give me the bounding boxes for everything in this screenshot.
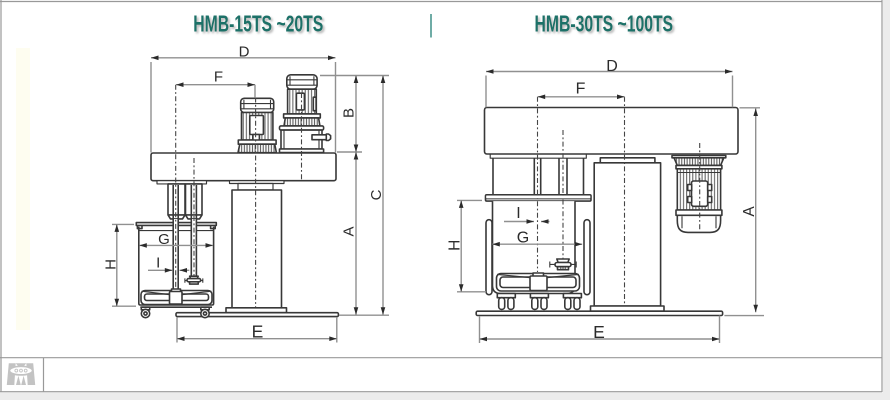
svg-text:I: I: [156, 254, 160, 271]
svg-text:D: D: [606, 58, 618, 75]
svg-text:F: F: [214, 69, 223, 86]
svg-text:B: B: [341, 108, 358, 118]
svg-text:E: E: [593, 322, 605, 342]
svg-text:H: H: [103, 259, 120, 270]
svg-text:A: A: [341, 226, 358, 236]
svg-text:E: E: [252, 321, 264, 341]
svg-text:H: H: [447, 240, 464, 251]
svg-text:G: G: [517, 229, 529, 246]
svg-text:HMB-30TS ~100TS: HMB-30TS ~100TS: [535, 10, 674, 36]
svg-text:D: D: [239, 44, 250, 61]
svg-text:HMB-15TS ~20TS: HMB-15TS ~20TS: [193, 10, 323, 36]
svg-text:A: A: [741, 206, 758, 217]
svg-text:C: C: [368, 189, 385, 200]
svg-text:G: G: [158, 231, 170, 248]
svg-text:I: I: [516, 205, 520, 222]
svg-text:F: F: [576, 81, 586, 98]
